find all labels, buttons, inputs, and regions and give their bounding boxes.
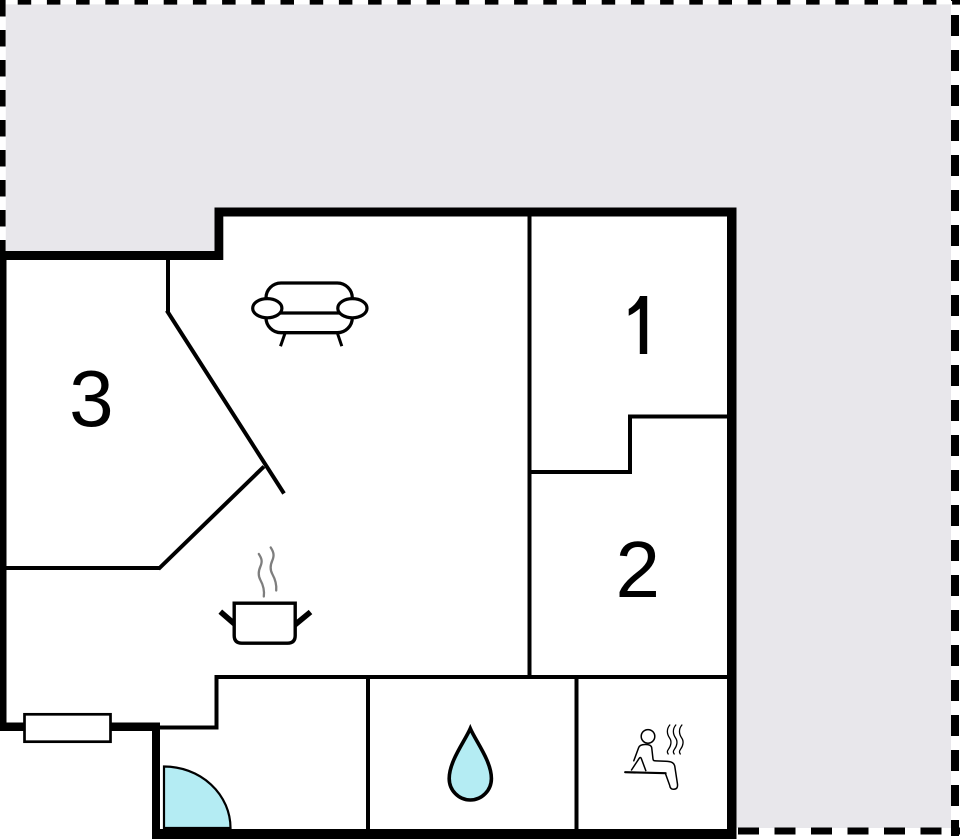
svg-text:2: 2 <box>615 525 660 614</box>
svg-text:3: 3 <box>69 354 114 443</box>
